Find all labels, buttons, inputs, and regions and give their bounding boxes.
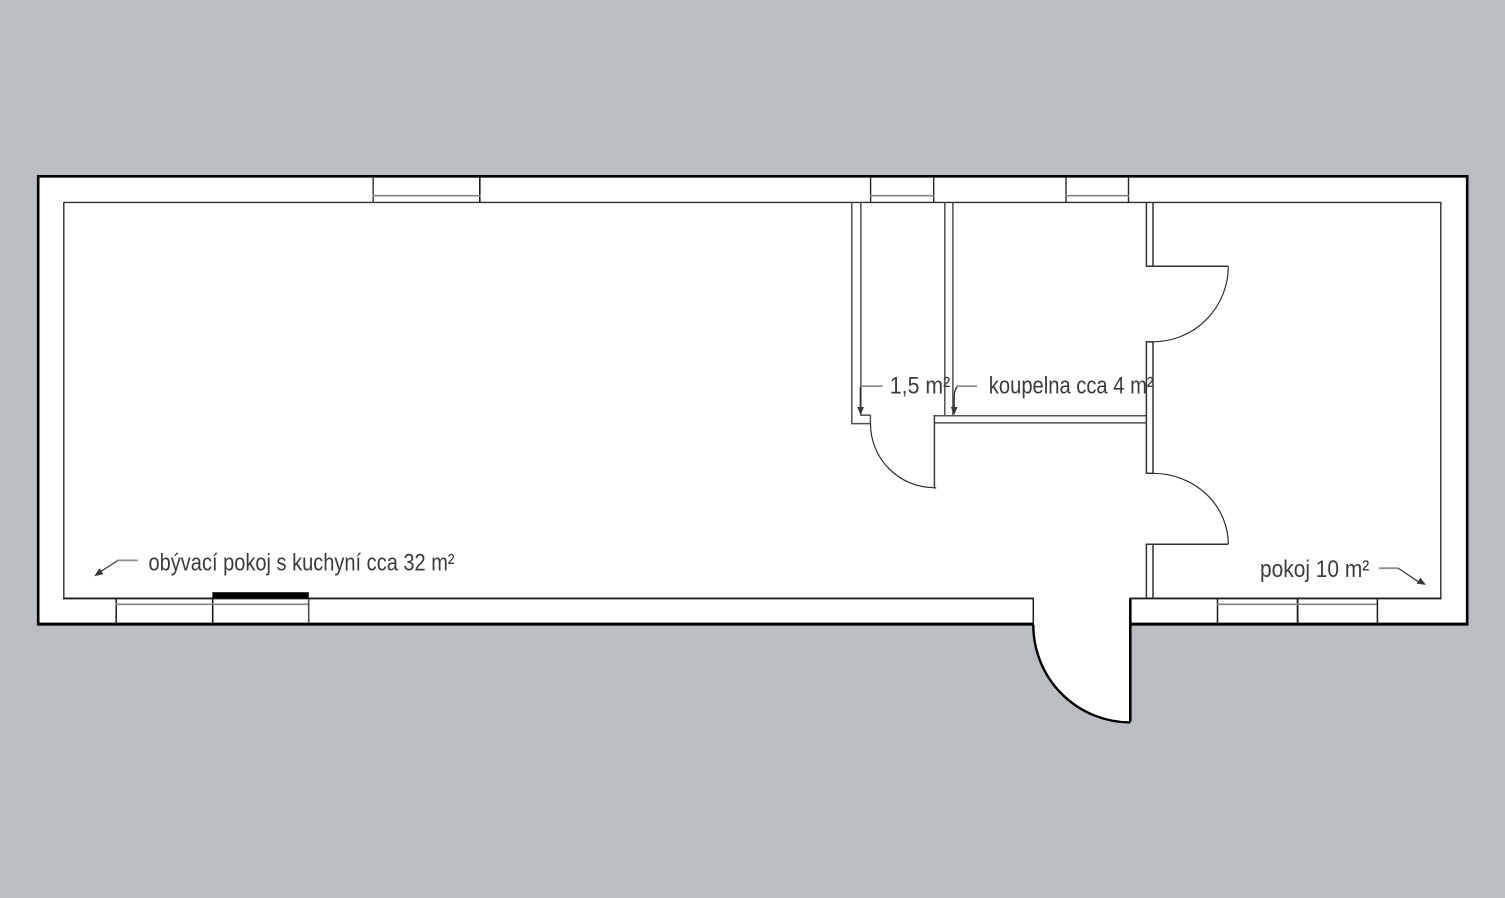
svg-text:pokoj 10 m²: pokoj 10 m² bbox=[1260, 556, 1370, 583]
svg-text:obývací pokoj s kuchyní cca 32: obývací pokoj s kuchyní cca 32 m² bbox=[149, 549, 455, 576]
svg-text:1,5 m²: 1,5 m² bbox=[890, 371, 951, 398]
svg-text:koupelna cca 4 m²: koupelna cca 4 m² bbox=[989, 372, 1154, 399]
